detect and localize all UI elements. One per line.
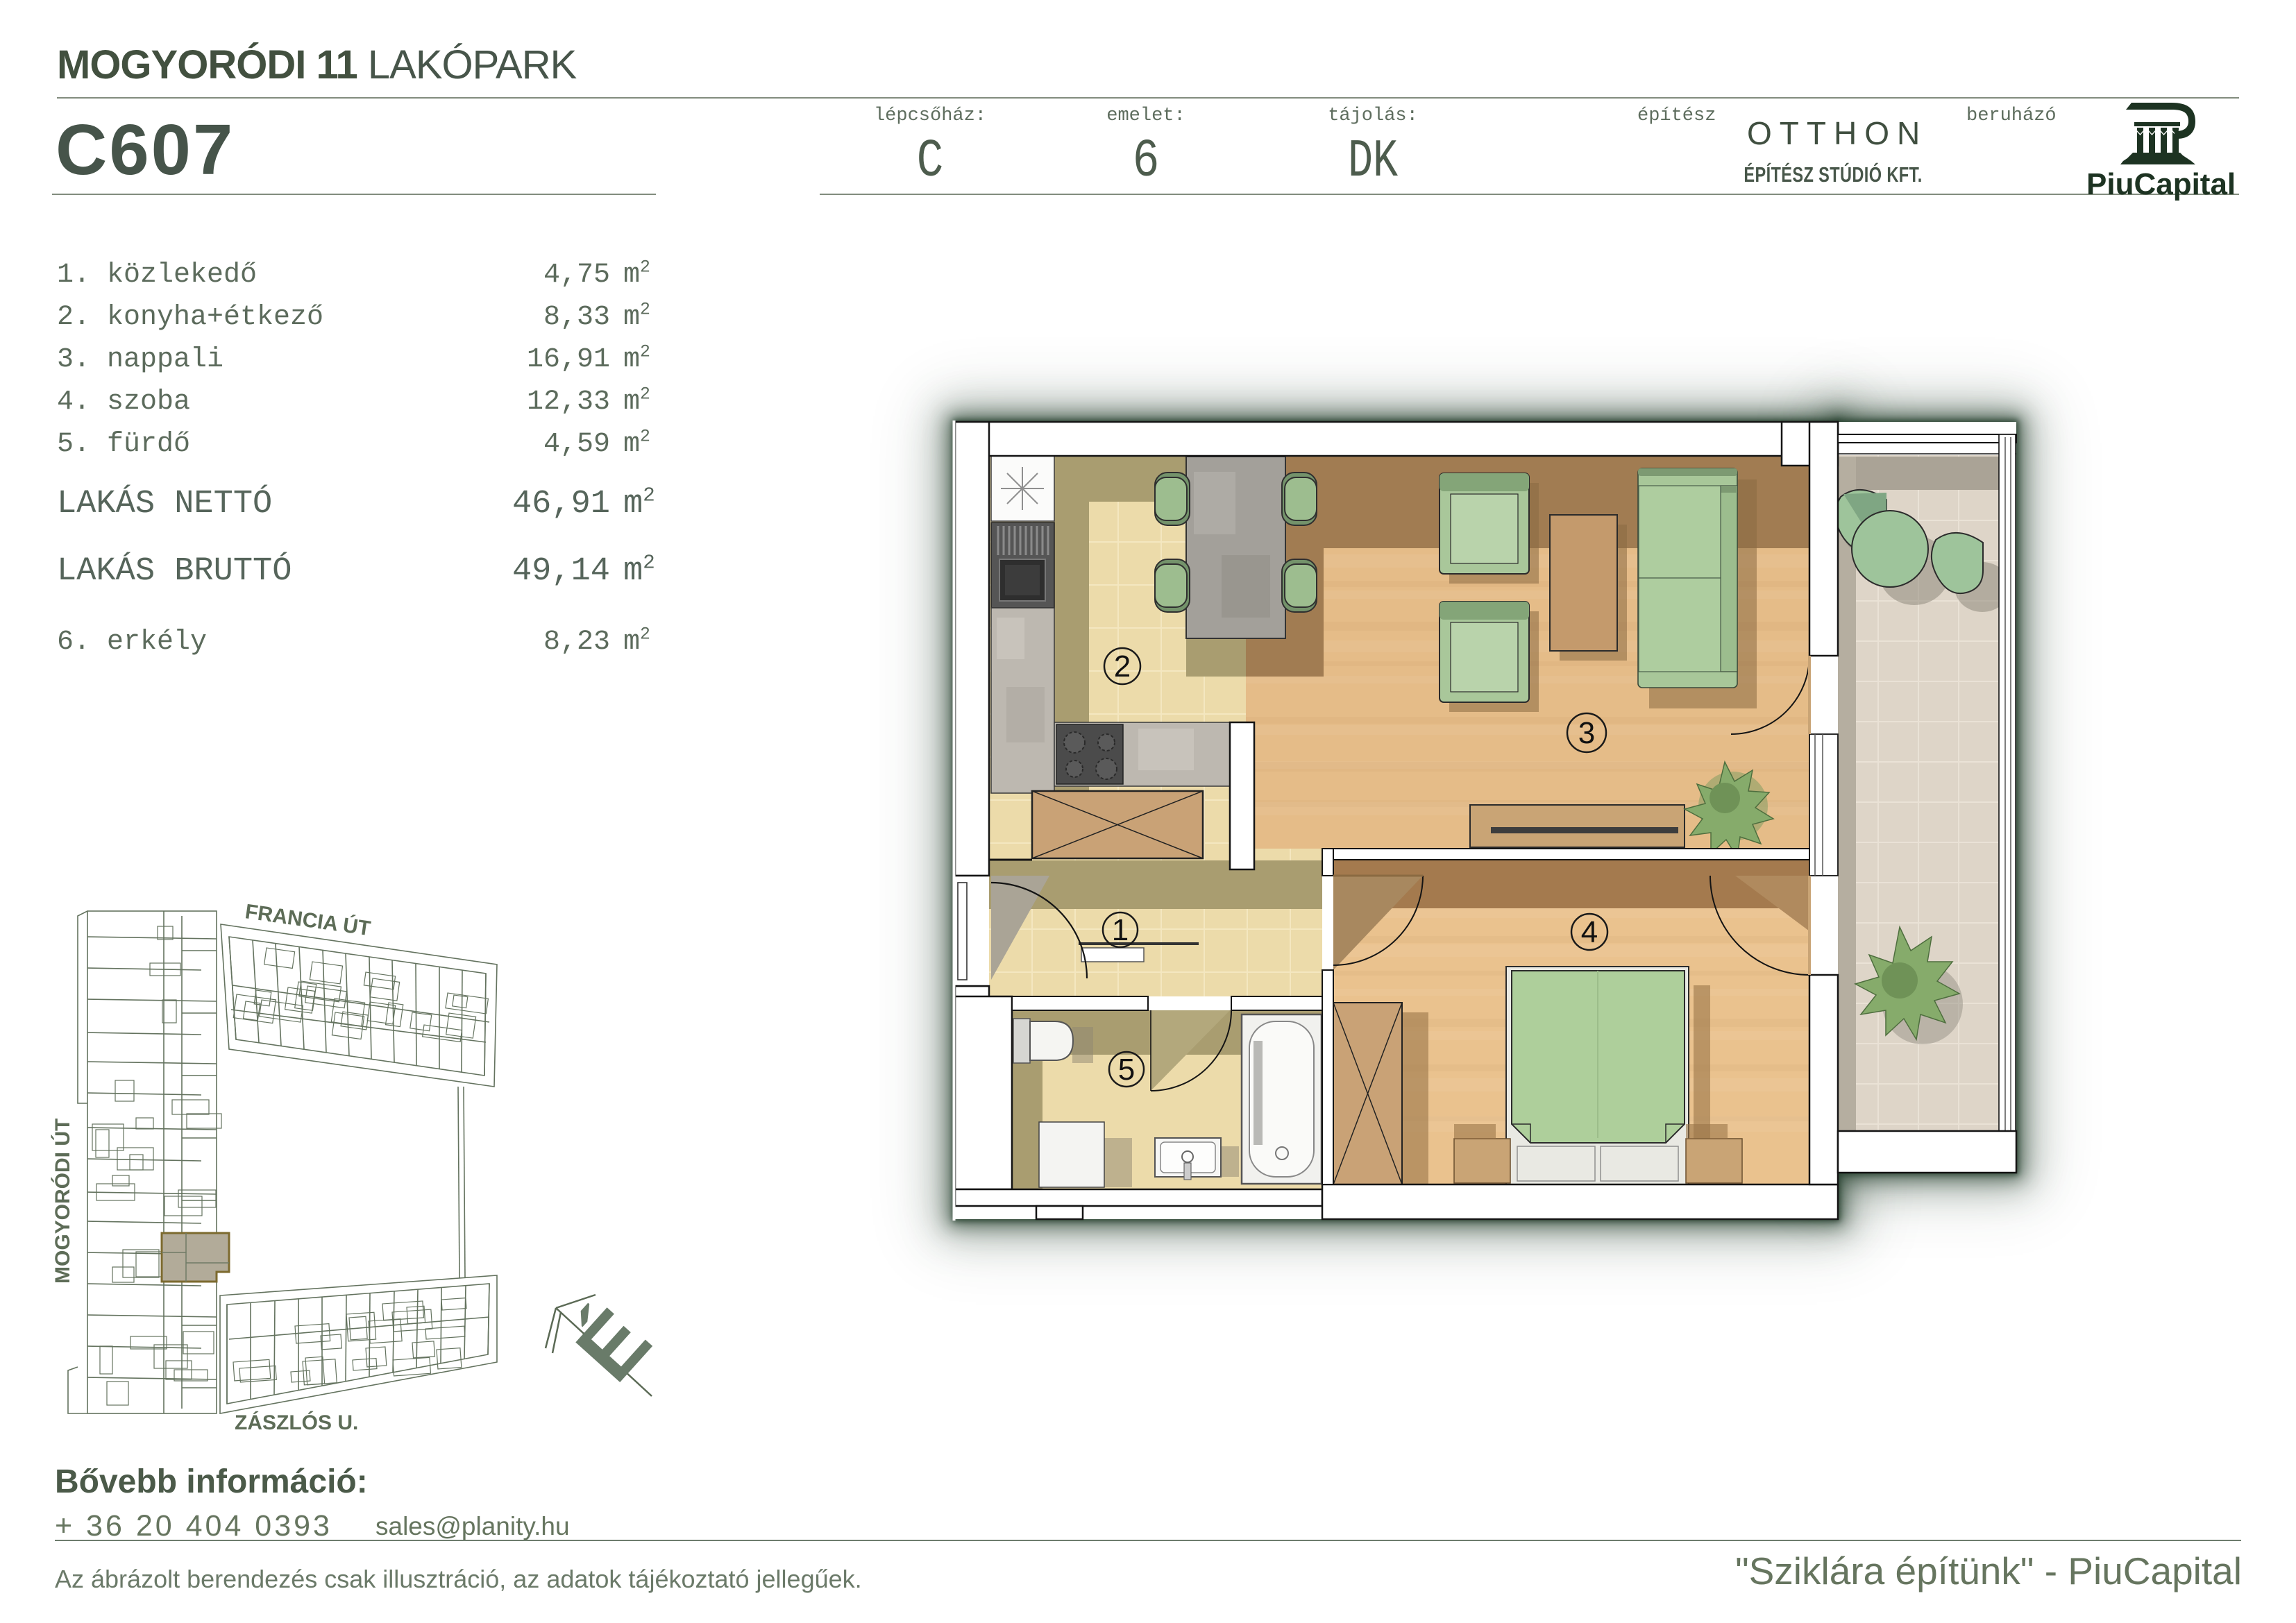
svg-text:ZÁSZLÓS U.: ZÁSZLÓS U. <box>235 1411 358 1434</box>
svg-text:MOGYORÓDI ÚT: MOGYORÓDI ÚT <box>51 1119 74 1284</box>
svg-text:FRANCIA ÚT: FRANCIA ÚT <box>244 899 372 940</box>
svg-text:5: 5 <box>1118 1053 1135 1087</box>
svg-text:É: É <box>558 1291 668 1399</box>
svg-text:1: 1 <box>1112 913 1129 947</box>
svg-text:3: 3 <box>1578 716 1595 750</box>
svg-text:4: 4 <box>1581 915 1598 949</box>
svg-text:2: 2 <box>1114 649 1131 683</box>
